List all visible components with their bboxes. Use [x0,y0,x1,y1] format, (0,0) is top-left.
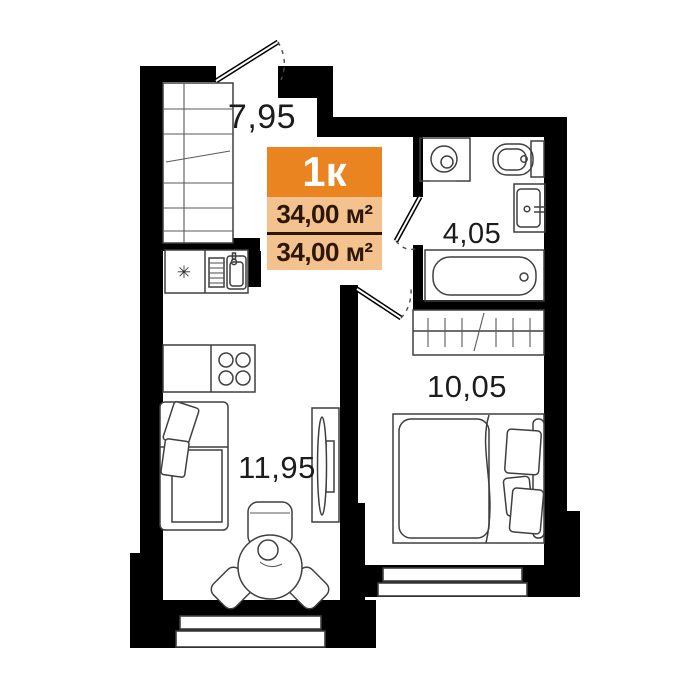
sofa-icon [160,401,228,530]
apartment-areas: 34,00 м² 34,00 м² [267,197,382,270]
total-area-label: 34,00 м² [267,197,382,232]
bathroom-area-label: 4,05 [443,218,501,250]
bathtub-icon [425,250,544,301]
washing-machine-icon [420,138,470,181]
stove-icon [163,345,255,392]
tv-icon [312,408,339,522]
apartment-type-label: 1к [267,147,382,197]
living-room-window [176,616,325,647]
living-room-door [357,288,411,318]
living-area-value: 34,00 м² [267,235,382,270]
fridge-icon: ✳ [177,263,191,282]
entry-door [216,42,284,81]
bedroom-wardrobe-icon [413,310,544,355]
bedroom-area-label: 10,05 [427,369,507,404]
apartment-badge: 1к 34,00 м² 34,00 м² [267,147,382,270]
floor-plan-page: ✳ [0,0,700,700]
bed-icon [393,414,544,543]
hallway-area-label: 7,95 [228,98,296,136]
hallway-wardrobe-icon [163,83,233,243]
bathroom-sink-icon [514,184,546,232]
fridge-star: ✳ [177,263,191,282]
living-area-label: 11,95 [238,450,316,485]
bathroom-door [396,197,420,249]
floor-plan: ✳ [0,0,700,700]
toilet-icon [493,141,544,177]
